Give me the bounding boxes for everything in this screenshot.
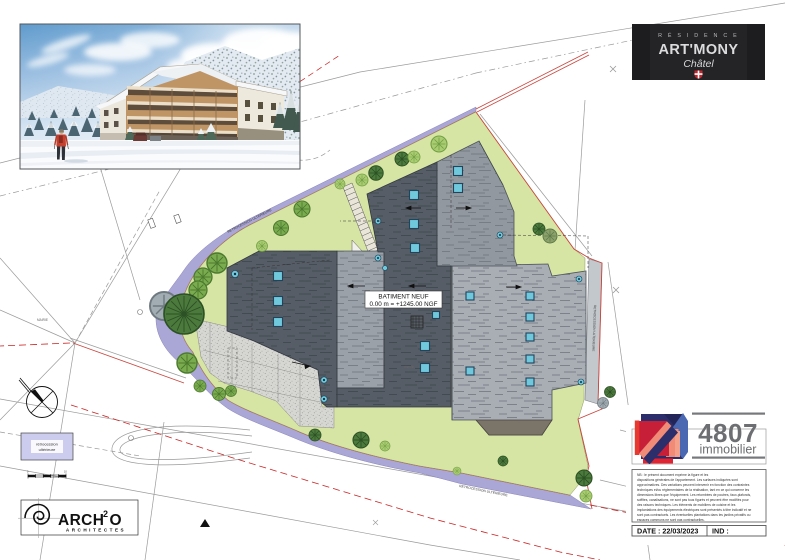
svg-text:implantations des équipements: implantations des équipements électrique… xyxy=(637,508,752,512)
svg-text:IND :: IND : xyxy=(712,527,729,536)
svg-text:R É S I D E N C E: R É S I D E N C E xyxy=(658,32,739,39)
svg-text:approximatives. Des variations: approximatives. Des variations peuvent i… xyxy=(637,483,750,487)
svg-text:BATIMENT NEUF: BATIMENT NEUF xyxy=(378,294,428,301)
svg-text:NB : le présent document expri: NB : le présent document exprime la figu… xyxy=(637,473,709,477)
svg-text:soffites, canalisations, ne so: soffites, canalisations, ne sont pas tou… xyxy=(637,498,750,502)
svg-text:des raisons techniques. Les él: des raisons techniques. Les éléments de … xyxy=(637,503,736,507)
svg-text:dimensions libres que l'équipe: dimensions libres que l'équipement. Les … xyxy=(637,493,751,497)
svg-text:ultérieure: ultérieure xyxy=(39,447,56,452)
svg-text:ARCH: ARCH xyxy=(58,512,104,529)
svg-text:O: O xyxy=(110,512,122,529)
svg-text:Châtel: Châtel xyxy=(683,58,714,70)
svg-text:immobilier: immobilier xyxy=(700,443,757,457)
svg-text:MAIRIE: MAIRIE xyxy=(37,318,48,322)
svg-text:ARCHITECTES: ARCHITECTES xyxy=(66,528,126,533)
svg-text:0.00 m = +1245.00 NGF: 0.00 m = +1245.00 NGF xyxy=(370,301,438,308)
svg-text:techniques et/ou réglementaire: techniques et/ou réglementaires de la ré… xyxy=(637,488,750,492)
svg-text:chemin: chemin xyxy=(404,365,415,369)
svg-text:rétrocession: rétrocession xyxy=(36,442,58,447)
svg-text:ART'MONY: ART'MONY xyxy=(659,42,739,58)
svg-text:2: 2 xyxy=(103,509,108,519)
svg-text:DATE : 22/03/2023: DATE : 22/03/2023 xyxy=(637,527,698,536)
svg-text:dispositions générales de l'ap: dispositions générales de l'appartement.… xyxy=(637,478,738,482)
svg-text:sont pas contractuels. Les éve: sont pas contractuels. Les éventuelles p… xyxy=(637,513,751,517)
